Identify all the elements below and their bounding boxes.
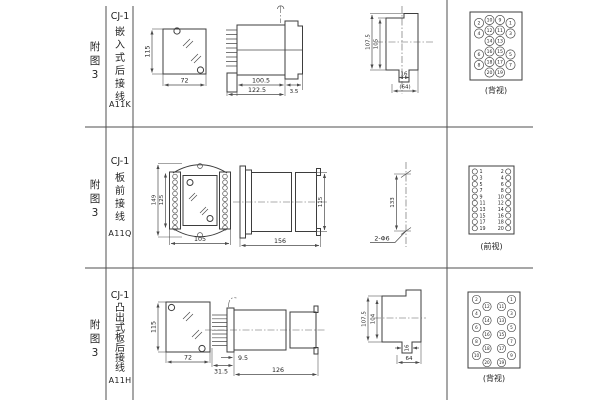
dim-cutout-width-r1: (64) [399,85,410,91]
terminal-number: 11 [499,304,505,309]
code-label-row1: A11K [106,100,134,109]
terminal-number: 8 [475,339,478,344]
dim-cutout-outer-r1: 107.5 [366,34,372,50]
mount-type-row3: 凸出式板后接线 [113,304,127,374]
terminal-number: 2 [475,297,478,302]
terminal-number: 12 [487,28,493,34]
terminal-number: 8 [478,63,481,69]
terminal-number: 3 [509,31,512,37]
mount-type-row2: 板前接线 [113,172,127,224]
terminal-number: 1 [509,21,512,27]
row2-side-view: 156 115 [233,166,327,247]
terminal-number: 11 [480,201,486,207]
terminal-number: 10 [498,194,504,200]
terminal-number: 9 [510,353,513,358]
terminal-caption-r3: (背视) [483,373,505,383]
terminal-number: 13 [497,39,503,45]
terminal-caption-r2: (前视) [480,241,502,251]
terminal-number: 2 [501,169,504,175]
terminal-number: 12 [484,304,490,309]
dim-drill-holes-r2: 2-Φ6 [374,236,389,243]
terminal-number: 19 [499,360,505,365]
dim-cutout-stub-r1: 16 [401,72,408,78]
terminal-number: 12 [498,201,504,207]
terminal-number: 6 [475,325,478,330]
row2-terminal-front-view: 1 3 5 7 9 11 13 15 17 19 2 4 6 8 10 12 1… [469,166,514,251]
terminal-number: 8 [501,188,504,194]
terminal-number: 15 [497,49,503,55]
model-label-row1: CJ-1 [106,11,134,22]
terminal-number: 6 [478,52,481,58]
row1-panel-cutout: 107.5 105 16 (64) [366,6,434,94]
row2-front-view: 149 125 105 [152,164,231,246]
terminal-number: 4 [501,176,504,182]
terminal-number: 18 [484,346,490,351]
terminal-number: 3 [510,311,513,316]
terminal-number: 5 [509,52,512,58]
mount-type-row1: 嵌入式后接线 [113,26,127,104]
terminal-number: 15 [480,213,486,219]
row1-front-view: 115 72 [145,28,207,86]
terminal-number: 7 [480,188,483,194]
terminal-number: 17 [499,346,505,351]
terminal-number: 19 [480,226,486,232]
dim-cutout-stub-r3: 16 [405,344,411,351]
terminal-number: 17 [480,220,486,226]
model-label-row2: CJ-1 [106,156,134,167]
terminal-number: 20 [498,226,504,232]
dim-front-width-r1: 72 [180,78,188,85]
terminal-number: 17 [497,60,503,66]
terminal-number: 19 [497,70,503,76]
terminal-number: 6 [501,182,504,188]
terminal-number: 13 [499,318,505,323]
figure-label-row3: 附图3 [88,318,102,360]
dim-side-total-r1: 122.5 [248,87,266,94]
terminal-number: 13 [480,207,486,213]
dim-side-pins-r3: 31.5 [214,369,228,376]
dim-front-outer-r2: 149 [152,194,158,205]
terminal-number: 14 [487,39,493,45]
dim-side-body-r3: 126 [272,367,284,374]
terminal-caption-r1: (背视) [485,85,507,95]
dim-front-width-r2: 105 [194,236,206,243]
terminal-number: 14 [498,207,504,213]
row2-drilling-plan: 133 2-Φ6 [370,162,411,247]
row3-terminal-rear-view: 2 4 6 8 10 12 14 16 18 20 11 13 15 17 19… [468,292,520,383]
terminal-number: 18 [498,220,504,226]
figure-label-row2: 附图3 [88,178,102,220]
dim-side-height-r2: 115 [318,196,324,207]
terminal-number: 20 [484,360,490,365]
dim-front-width-r3: 72 [184,355,192,362]
code-label-row3: A11H [106,376,134,385]
model-label-row3: CJ-1 [106,290,134,301]
terminal-number: 9 [499,18,502,24]
dim-cutout-outer-r3: 107.5 [362,311,368,327]
terminal-number: 16 [498,213,504,219]
terminal-number: 7 [510,339,513,344]
terminal-number: 16 [487,49,493,55]
dim-side-offset-r3: 9.5 [238,355,248,362]
dim-cutout-inner-r3: 104 [371,313,377,324]
dim-side-flange-r1: 3.5 [290,89,299,95]
dim-side-total-r2: 156 [274,238,286,245]
terminal-number: 16 [484,332,490,337]
terminal-number: 15 [499,332,505,337]
terminal-number: 2 [478,21,481,27]
terminal-number: 14 [484,318,490,323]
code-label-row2: A11Q [106,229,134,238]
dim-front-inner-r2: 125 [159,194,165,205]
dim-cutout-width-r3: 64 [406,356,413,362]
terminal-number: 5 [510,325,513,330]
terminal-number: 20 [487,70,493,76]
dim-cutout-inner-r1: 105 [374,38,380,49]
row3-panel-cutout: 107.5 104 16 64 [362,290,427,364]
terminal-number: 5 [480,182,483,188]
terminal-number: 3 [480,176,483,182]
dim-front-height-r3: 115 [151,321,158,333]
row1-terminal-rear-view: 2 10 9 1 4 12 11 3 14 13 6 16 15 5 8 18 … [470,12,522,95]
terminal-number: 10 [487,18,493,24]
terminal-number: 4 [478,31,481,37]
row3-front-view: 115 72 [151,302,211,363]
terminal-number: 11 [497,28,503,34]
row1-side-view: 100.5 122.5 3.5 [226,6,303,96]
figure-sheet: 115 72 100.5 122.5 3.5 107.5 105 [0,0,600,400]
terminal-number: 4 [475,311,478,316]
terminal-number: 1 [480,169,483,175]
terminal-number: 10 [474,353,480,358]
dim-drill-pitch-r2: 133 [390,197,396,208]
dim-front-height-r1: 115 [145,45,152,57]
figure-label-row1: 附图3 [88,40,102,82]
terminal-number: 1 [510,297,513,302]
terminal-number: 9 [480,194,483,200]
row3-side-view: 9.5 31.5 126 [205,298,325,376]
terminal-number: 7 [509,63,512,69]
terminal-number: 18 [487,60,493,66]
dim-side-body-r1: 100.5 [252,78,270,85]
